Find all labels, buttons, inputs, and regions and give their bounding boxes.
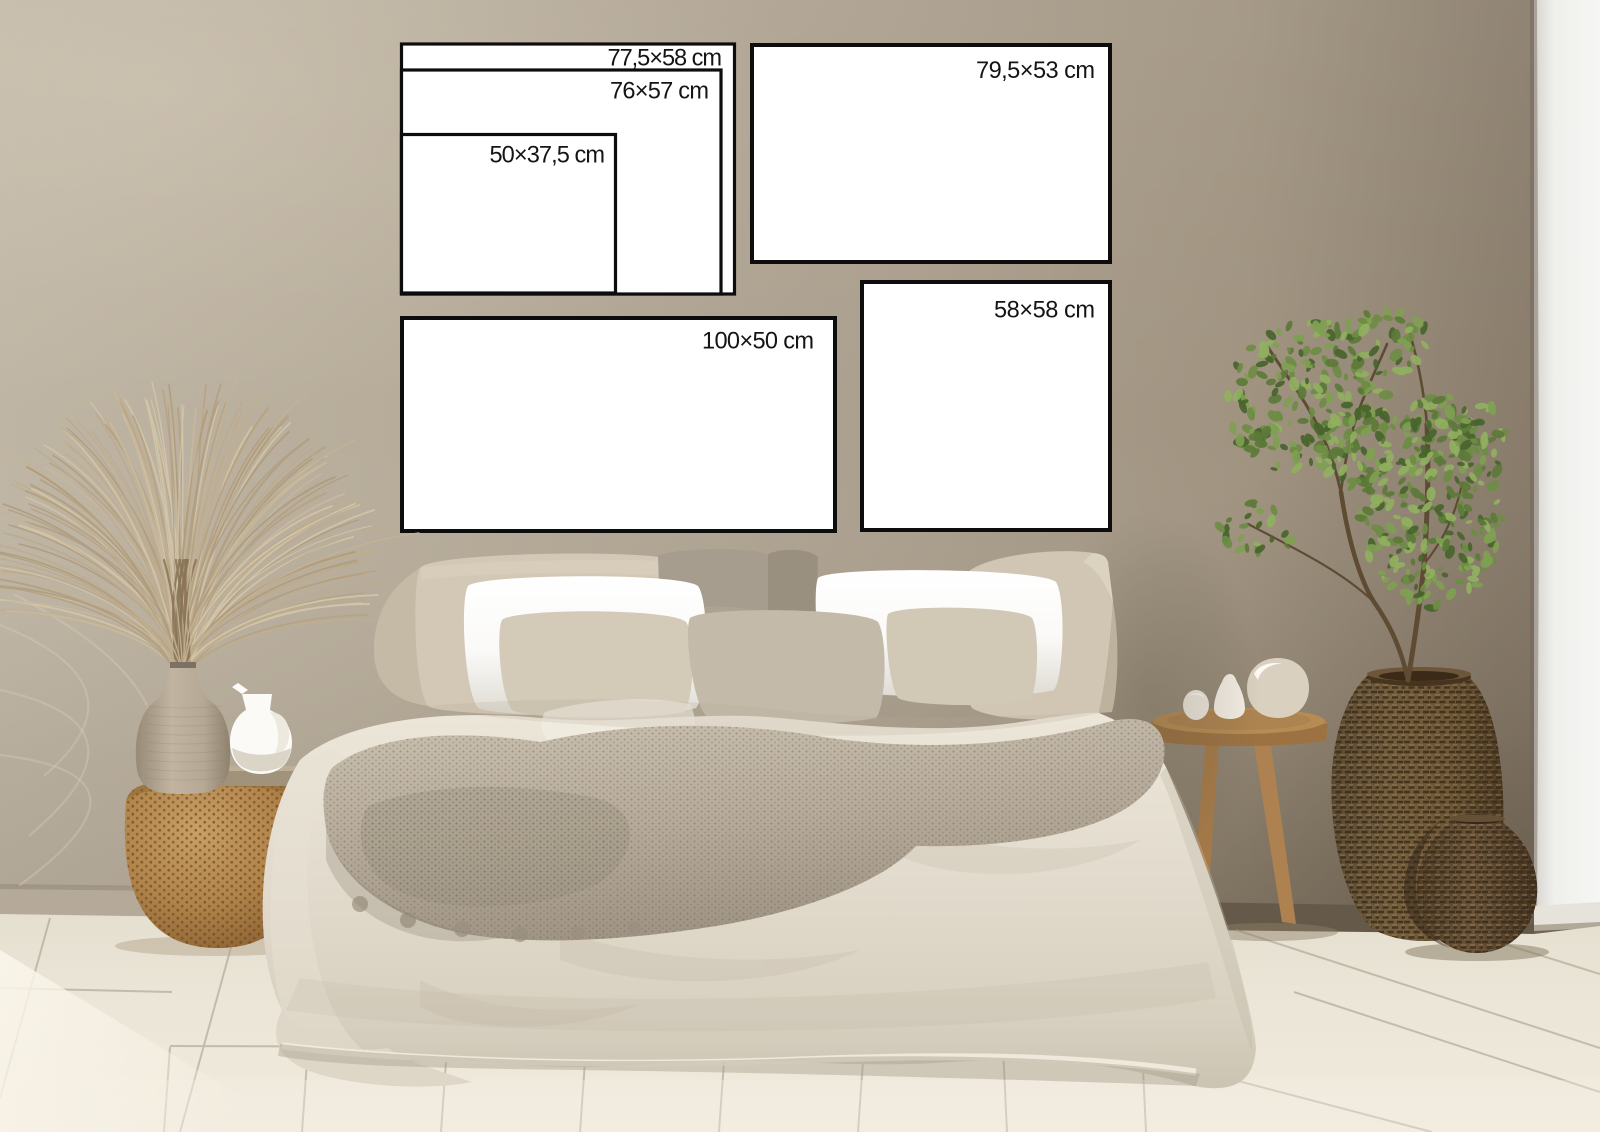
svg-text:58×58 cm: 58×58 cm [994, 298, 1095, 324]
svg-text:76×57 cm: 76×57 cm [610, 79, 709, 105]
svg-text:77,5×58 cm: 77,5×58 cm [608, 45, 723, 71]
svg-text:79,5×53 cm: 79,5×53 cm [976, 58, 1095, 84]
svg-text:100×50 cm: 100×50 cm [702, 329, 814, 355]
svg-text:50×37,5 cm: 50×37,5 cm [490, 143, 606, 169]
